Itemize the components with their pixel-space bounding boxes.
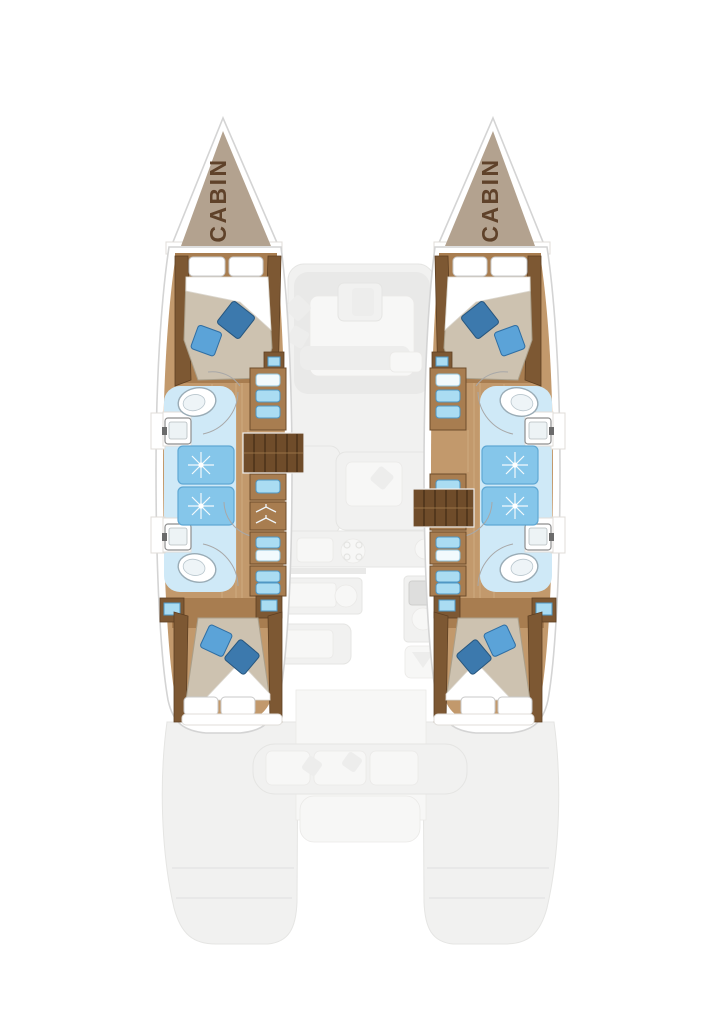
- floorplan-stage: CABIN CABIN: [0, 0, 721, 1024]
- saloon-ghost: [284, 264, 434, 456]
- bow-cabin-label: CABIN: [205, 157, 231, 242]
- lounge-ghost: [288, 446, 432, 534]
- bow-cabin-label: CABIN: [477, 157, 503, 242]
- port-hull: CABIN: [151, 118, 304, 733]
- galley-ghost: [268, 531, 442, 678]
- companionway-stairs: [413, 489, 474, 527]
- companionway-stairs: [243, 433, 304, 473]
- starboard-hull: CABIN: [413, 118, 565, 733]
- galley-sink: [297, 538, 333, 562]
- catamaran-floorplan: CABIN CABIN: [0, 0, 721, 1024]
